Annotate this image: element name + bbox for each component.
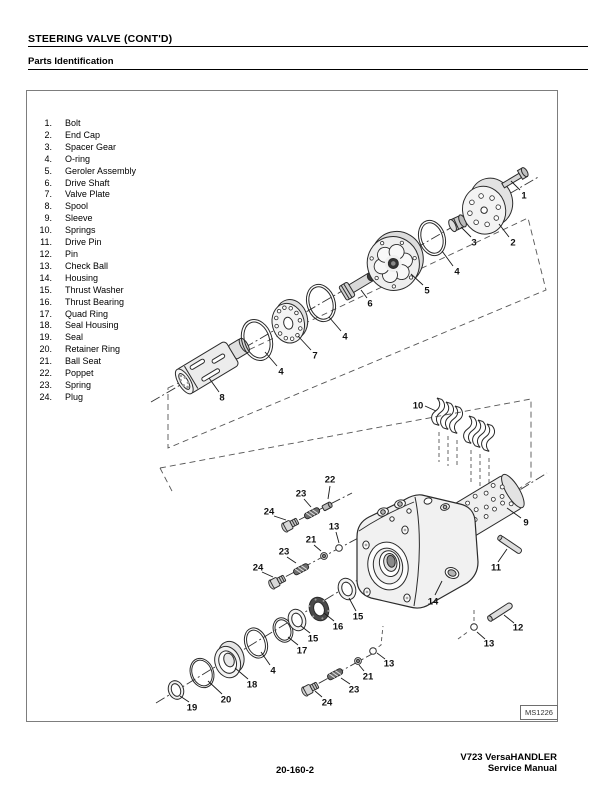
parts-list-item-name: Drive Pin bbox=[65, 237, 102, 249]
subsection-title-rule bbox=[28, 69, 588, 70]
parts-list-item: 7.Valve Plate bbox=[28, 189, 136, 201]
parts-list-item-name: End Cap bbox=[65, 130, 100, 142]
parts-list-item-name: O-ring bbox=[65, 154, 90, 166]
parts-list-item-number: 6. bbox=[28, 178, 52, 190]
parts-list-item: 6.Drive Shaft bbox=[28, 178, 136, 190]
parts-list-item: 17.Quad Ring bbox=[28, 309, 136, 321]
parts-list-item-name: Housing bbox=[65, 273, 98, 285]
parts-list-item: 2.End Cap bbox=[28, 130, 136, 142]
parts-list-item-name: Spring bbox=[65, 380, 91, 392]
section-title: STEERING VALVE (CONT'D) bbox=[28, 33, 172, 45]
parts-list-item-number: 15. bbox=[28, 285, 52, 297]
parts-list-item: 24.Plug bbox=[28, 392, 136, 404]
parts-list-item-name: Geroler Assembly bbox=[65, 166, 136, 178]
parts-list-item: 16.Thrust Bearing bbox=[28, 297, 136, 309]
section-title-rule bbox=[28, 46, 588, 47]
parts-list-item: 4.O-ring bbox=[28, 154, 136, 166]
parts-list-item-name: Ball Seat bbox=[65, 356, 101, 368]
parts-list-item-number: 23. bbox=[28, 380, 52, 392]
parts-list-item-name: Quad Ring bbox=[65, 309, 108, 321]
parts-list-item-name: Spacer Gear bbox=[65, 142, 116, 154]
parts-list-item: 15.Thrust Washer bbox=[28, 285, 136, 297]
parts-list-item-name: Seal Housing bbox=[65, 320, 119, 332]
parts-list-item-name: Springs bbox=[65, 225, 96, 237]
parts-list-item: 18.Seal Housing bbox=[28, 320, 136, 332]
parts-list-item: 21.Ball Seat bbox=[28, 356, 136, 368]
parts-list-item-number: 21. bbox=[28, 356, 52, 368]
footer-doc-line1: V723 VersaHANDLER bbox=[460, 752, 557, 763]
parts-list-item: 22.Poppet bbox=[28, 368, 136, 380]
parts-list-item: 1.Bolt bbox=[28, 118, 136, 130]
parts-list-item-number: 2. bbox=[28, 130, 52, 142]
parts-list-item-number: 16. bbox=[28, 297, 52, 309]
footer-doc-line2: Service Manual bbox=[460, 763, 557, 774]
parts-list-item-name: Check Ball bbox=[65, 261, 108, 273]
parts-list-item: 10.Springs bbox=[28, 225, 136, 237]
parts-list-item: 23.Spring bbox=[28, 380, 136, 392]
parts-list-item: 5.Geroler Assembly bbox=[28, 166, 136, 178]
parts-list-item-number: 10. bbox=[28, 225, 52, 237]
parts-list-item-name: Drive Shaft bbox=[65, 178, 110, 190]
parts-list-item-number: 12. bbox=[28, 249, 52, 261]
parts-list-item: 19.Seal bbox=[28, 332, 136, 344]
parts-list-item-name: Thrust Washer bbox=[65, 285, 124, 297]
parts-list-item-number: 24. bbox=[28, 392, 52, 404]
manual-page: { "header": { "section_title": "STEERING… bbox=[0, 0, 612, 792]
parts-list-item: 12.Pin bbox=[28, 249, 136, 261]
parts-list-item: 8.Spool bbox=[28, 201, 136, 213]
parts-list-item-number: 7. bbox=[28, 189, 52, 201]
parts-list-item: 20.Retainer Ring bbox=[28, 344, 136, 356]
parts-list-item-name: Retainer Ring bbox=[65, 344, 120, 356]
parts-list-item-number: 4. bbox=[28, 154, 52, 166]
parts-list-item: 14.Housing bbox=[28, 273, 136, 285]
parts-list-item-number: 19. bbox=[28, 332, 52, 344]
parts-list-item-name: Sleeve bbox=[65, 213, 93, 225]
footer-doc-title: V723 VersaHANDLER Service Manual bbox=[460, 752, 557, 774]
parts-list-item-name: Plug bbox=[65, 392, 83, 404]
parts-list-item-number: 5. bbox=[28, 166, 52, 178]
parts-list-item-number: 20. bbox=[28, 344, 52, 356]
parts-list-item-name: Thrust Bearing bbox=[65, 297, 124, 309]
parts-list-item: 13.Check Ball bbox=[28, 261, 136, 273]
parts-list-item-number: 14. bbox=[28, 273, 52, 285]
footer-page-number: 20-160-2 bbox=[200, 765, 390, 776]
figure-id-label: MS1226 bbox=[520, 705, 558, 720]
parts-list-item-name: Pin bbox=[65, 249, 78, 261]
parts-list-item-name: Seal bbox=[65, 332, 83, 344]
parts-list: 1.Bolt2.End Cap3.Spacer Gear4.O-ring5.Ge… bbox=[28, 118, 136, 404]
parts-list-item-number: 3. bbox=[28, 142, 52, 154]
parts-list-item-number: 8. bbox=[28, 201, 52, 213]
parts-list-item: 11.Drive Pin bbox=[28, 237, 136, 249]
parts-list-item-number: 18. bbox=[28, 320, 52, 332]
parts-list-item-number: 11. bbox=[28, 237, 52, 249]
parts-list-item-number: 9. bbox=[28, 213, 52, 225]
subsection-title: Parts Identification bbox=[28, 56, 114, 67]
parts-list-item-name: Spool bbox=[65, 201, 88, 213]
parts-list-item-number: 1. bbox=[28, 118, 52, 130]
parts-list-item-number: 22. bbox=[28, 368, 52, 380]
parts-list-item-number: 13. bbox=[28, 261, 52, 273]
parts-list-item: 9.Sleeve bbox=[28, 213, 136, 225]
parts-list-item-name: Bolt bbox=[65, 118, 81, 130]
parts-list-item-name: Valve Plate bbox=[65, 189, 110, 201]
parts-list-item: 3.Spacer Gear bbox=[28, 142, 136, 154]
parts-list-item-number: 17. bbox=[28, 309, 52, 321]
parts-list-item-name: Poppet bbox=[65, 368, 94, 380]
